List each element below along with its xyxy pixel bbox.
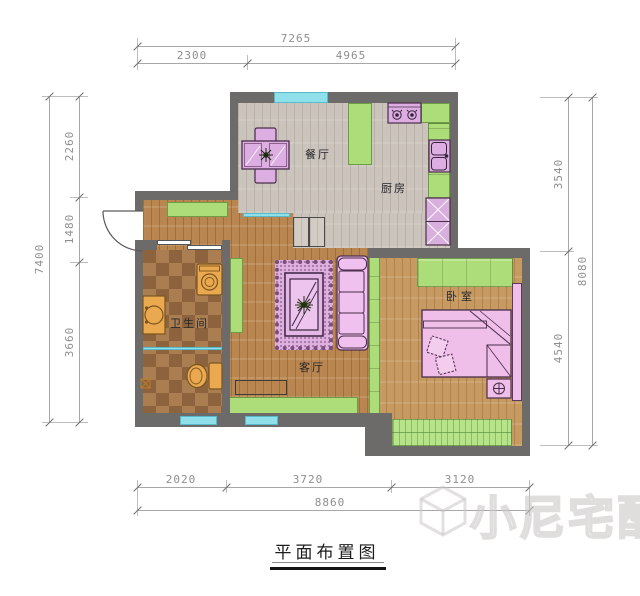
wall-left-upper [135,200,143,211]
wall-kitchen-right [450,92,458,258]
dim-top-seg2: 4965 [321,49,381,62]
room-label-bathroom: 卫生间 [170,315,209,331]
dimension-line [49,96,50,422]
title-underline-thin [272,562,384,563]
room-label-kitchen: 厨房 [381,180,407,196]
dimension-line [568,97,569,445]
living-room-rug [275,260,333,350]
dim-right-total: 8080 [577,249,589,293]
watermark-text: 小尼宅配 [470,482,640,548]
dining-tall-cabinet [348,103,372,165]
dim-top-total: 7265 [266,32,326,45]
living-side-cabinet [230,258,243,333]
wall-bedroom-left-corner [365,413,392,456]
dim-bottom-total: 8860 [300,496,360,509]
kitchen-corner-counter [421,103,450,123]
room-label-living: 客厅 [299,359,325,375]
watermark: 小尼宅配 [414,480,640,540]
dimension-line [137,63,455,64]
wall-entry-top [135,191,238,200]
kitchen-side-counter [428,123,450,245]
dining-kitchen-floor [238,103,450,213]
window-bottom-right [245,416,278,425]
bedroom-wardrobe [417,258,513,287]
wall-bedroom-top [368,248,530,258]
window-top [274,92,328,103]
floor-plan: 餐厅 厨房 卫生间 客厅 卧室 7265 2300 4965 7400 2260… [0,0,640,596]
room-label-bedroom: 卧室 [446,288,476,304]
bathroom-sliding-door [157,240,222,251]
step [293,217,309,247]
dining-platform-glass-railing [243,213,290,217]
sliding-door-panel [187,245,222,250]
drawing-title: 平面布置图 [247,538,407,563]
dimension-line [79,96,80,422]
extension-line [137,38,138,70]
bedroom-bay-window-plants [392,419,512,446]
dim-bottom-seg2: 3720 [278,473,338,486]
title-underline-thick [270,567,386,570]
dim-top-seg1: 2300 [162,49,222,62]
living-bedroom-divider-cabinet [369,256,380,416]
dim-right-seg1: 3540 [553,152,565,196]
bathroom-floor [143,250,222,413]
window-bottom-left [180,416,217,425]
dim-left-seg2: 1480 [64,207,76,251]
room-label-dining: 餐厅 [305,146,331,162]
entry-shoe-cabinet [167,202,228,217]
extension-line [455,38,456,70]
wall-bathroom-top-stub [135,240,157,250]
shower-glass-partition [143,347,222,350]
dim-left-seg3: 3660 [64,320,76,364]
cube-logo-icon [416,484,470,540]
wall-dining-left [230,92,238,198]
dim-right-seg2: 4540 [553,326,565,370]
bedroom-curtain-strip [512,283,522,401]
dim-left-seg1: 2260 [64,124,76,168]
dimension-line [137,46,455,47]
dim-bottom-seg1: 2020 [151,473,211,486]
wall-bathroom-right [222,240,230,427]
tv-cabinet [235,380,287,395]
wall-bedroom-right [522,258,530,456]
step [309,217,325,247]
dim-left-total: 7400 [34,237,46,281]
sliding-door-panel [157,240,191,245]
wall-left-lower [135,249,143,427]
wall-top [230,92,458,103]
dimension-line [592,97,593,445]
